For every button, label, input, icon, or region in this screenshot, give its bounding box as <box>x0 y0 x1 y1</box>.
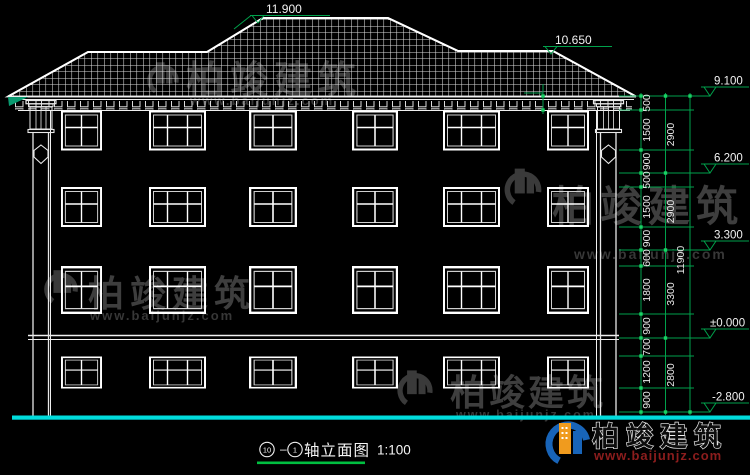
elevation-value: 6.200 <box>714 153 743 165</box>
elevation-value: -2.800 <box>712 392 745 404</box>
elevation-marker-basement: -2.800 <box>701 392 749 413</box>
elevation-value: ±0.000 <box>710 318 745 330</box>
dim-label: 2900 <box>665 123 677 147</box>
window <box>444 112 499 150</box>
watermark-brand-text: 柏竣建筑 <box>450 372 606 413</box>
elevation-triangle-icon <box>704 329 716 338</box>
dim-label: 900 <box>641 153 653 171</box>
dim-label: 1500 <box>641 118 653 142</box>
window <box>353 112 397 150</box>
elevation-marker-ground: ±0.000 <box>701 318 749 339</box>
drawing-title: 10 – 1 轴立面图 1:100 <box>257 442 411 465</box>
dim-label: 3300 <box>665 282 677 306</box>
watermark-logo-icon <box>501 168 545 212</box>
title-underline <box>257 462 365 465</box>
window <box>150 188 205 226</box>
brand-url-text: www.baijunjz.com <box>593 448 722 463</box>
axis-number: 10 <box>263 445 271 454</box>
cad-elevation-canvas: 柏竣建筑 www.baijunjz.com 柏竣建筑 www.baijunjz.… <box>0 0 750 475</box>
elevation-triangle-icon <box>704 164 716 173</box>
dim-label: 900 <box>641 391 653 409</box>
window <box>250 267 296 313</box>
elevation-triangle-icon <box>704 87 716 96</box>
watermark-url-text: www.baijunjz.com <box>455 408 596 422</box>
window <box>250 112 296 150</box>
dim-label: 1800 <box>641 278 653 302</box>
dim-label: 500 <box>641 94 653 112</box>
title-text: 轴立面图 <box>304 442 370 460</box>
window <box>353 357 397 387</box>
title-scale: 1:100 <box>377 443 411 458</box>
dim-label: 1500 <box>641 195 653 219</box>
dim-label: 700 <box>641 338 653 356</box>
elevation-value: 10.650 <box>555 33 592 47</box>
pilaster-left <box>26 101 56 417</box>
brand-logo: 柏竣建筑 www.baijunjz.com <box>542 418 728 469</box>
shield-ornament <box>602 145 616 164</box>
dim-label: 600 <box>641 249 653 267</box>
cornice-dentils <box>14 101 632 110</box>
dim-label: 900 <box>641 230 653 248</box>
window-grid <box>62 112 588 388</box>
elevation-markers: 9.100 6.200 3.300 ±0.000 -2.800 <box>701 76 749 413</box>
axis-number: 1 <box>293 445 297 454</box>
shield-ornament <box>34 145 48 164</box>
ground-line <box>12 416 750 420</box>
dim-label: 500 <box>641 171 653 189</box>
window <box>250 188 296 226</box>
watermark-right-middle: 柏竣建筑 www.baijunjz.com <box>501 168 744 262</box>
logo-building-icon <box>559 423 571 454</box>
window <box>444 188 499 226</box>
dim-label: 2800 <box>665 363 677 387</box>
elevation-triangle-icon <box>704 403 716 412</box>
dim-labels-col1: 500 1500 900 500 1500 900 600 1800 900 7… <box>641 94 653 409</box>
elevation-value: 9.100 <box>714 76 743 88</box>
elevation-value: 11.900 <box>266 2 302 16</box>
elevation-value: 3.300 <box>714 230 743 242</box>
watermark-bottom-center: 柏竣建筑 www.baijunjz.com <box>394 370 606 422</box>
dim-label: 1200 <box>641 360 653 384</box>
logo-building-icon <box>573 431 582 454</box>
window <box>62 112 101 150</box>
axis-dash: – <box>280 442 287 456</box>
watermark-url-text: www.baijunjz.com <box>89 308 234 323</box>
roof-tile-area <box>8 18 636 97</box>
elevation-marker-eave: 9.100 <box>701 76 749 97</box>
facade <box>26 101 624 417</box>
watermark-logo-icon <box>394 370 436 412</box>
elevation-drawing: 柏竣建筑 www.baijunjz.com 柏竣建筑 www.baijunjz.… <box>0 0 750 475</box>
window <box>250 357 296 387</box>
window <box>444 267 499 313</box>
elevation-marker-floor3: 6.200 <box>701 153 749 174</box>
window <box>353 188 397 226</box>
window <box>150 112 205 150</box>
dim-label: 2900 <box>665 200 677 224</box>
dim-label-total: 11900 <box>675 246 687 275</box>
window <box>548 267 588 313</box>
window <box>353 267 397 313</box>
window <box>62 357 101 387</box>
window <box>62 188 101 226</box>
window <box>548 112 588 150</box>
watermark-left-middle: 柏竣建筑 www.baijunjz.com <box>41 270 256 323</box>
capital-base <box>596 130 622 133</box>
window <box>150 357 205 387</box>
dim-label: 900 <box>641 317 653 335</box>
elevation-marker-wing-ridge: 10.650 <box>543 33 612 54</box>
